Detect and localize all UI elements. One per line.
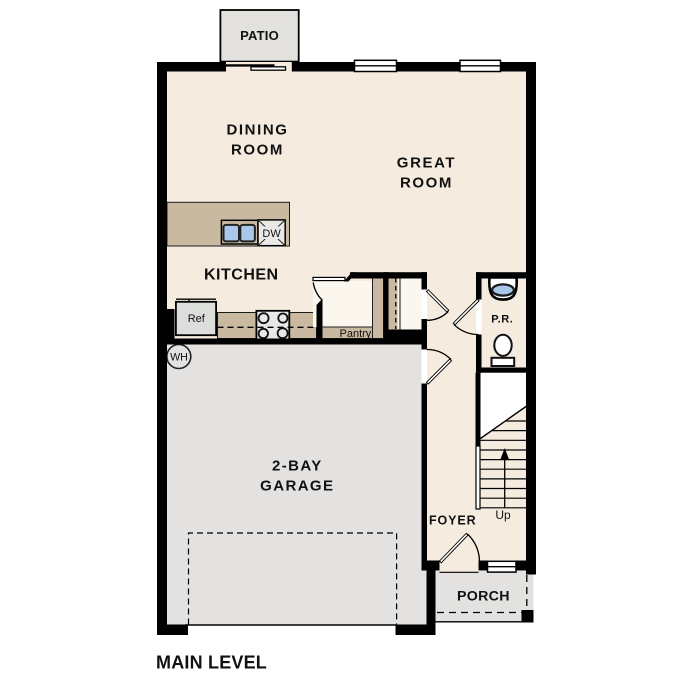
svg-text:DW: DW: [262, 228, 281, 240]
svg-text:Pantry: Pantry: [340, 328, 372, 340]
svg-text:PORCH: PORCH: [457, 589, 510, 605]
svg-text:2-BAY: 2-BAY: [272, 458, 323, 475]
svg-text:GREAT: GREAT: [397, 154, 456, 171]
svg-text:DINING: DINING: [226, 122, 288, 139]
svg-text:WH: WH: [170, 352, 188, 364]
svg-text:ROOM: ROOM: [400, 174, 453, 191]
svg-text:PATIO: PATIO: [240, 28, 279, 43]
svg-text:Up: Up: [495, 508, 511, 522]
svg-text:KITCHEN: KITCHEN: [204, 266, 279, 283]
svg-text:P.R.: P.R.: [491, 314, 513, 326]
svg-text:ROOM: ROOM: [231, 142, 284, 159]
svg-text:Ref: Ref: [188, 313, 206, 325]
svg-text:MAIN LEVEL: MAIN LEVEL: [156, 653, 267, 673]
svg-text:GARAGE: GARAGE: [260, 478, 334, 495]
svg-text:FOYER: FOYER: [429, 514, 477, 528]
